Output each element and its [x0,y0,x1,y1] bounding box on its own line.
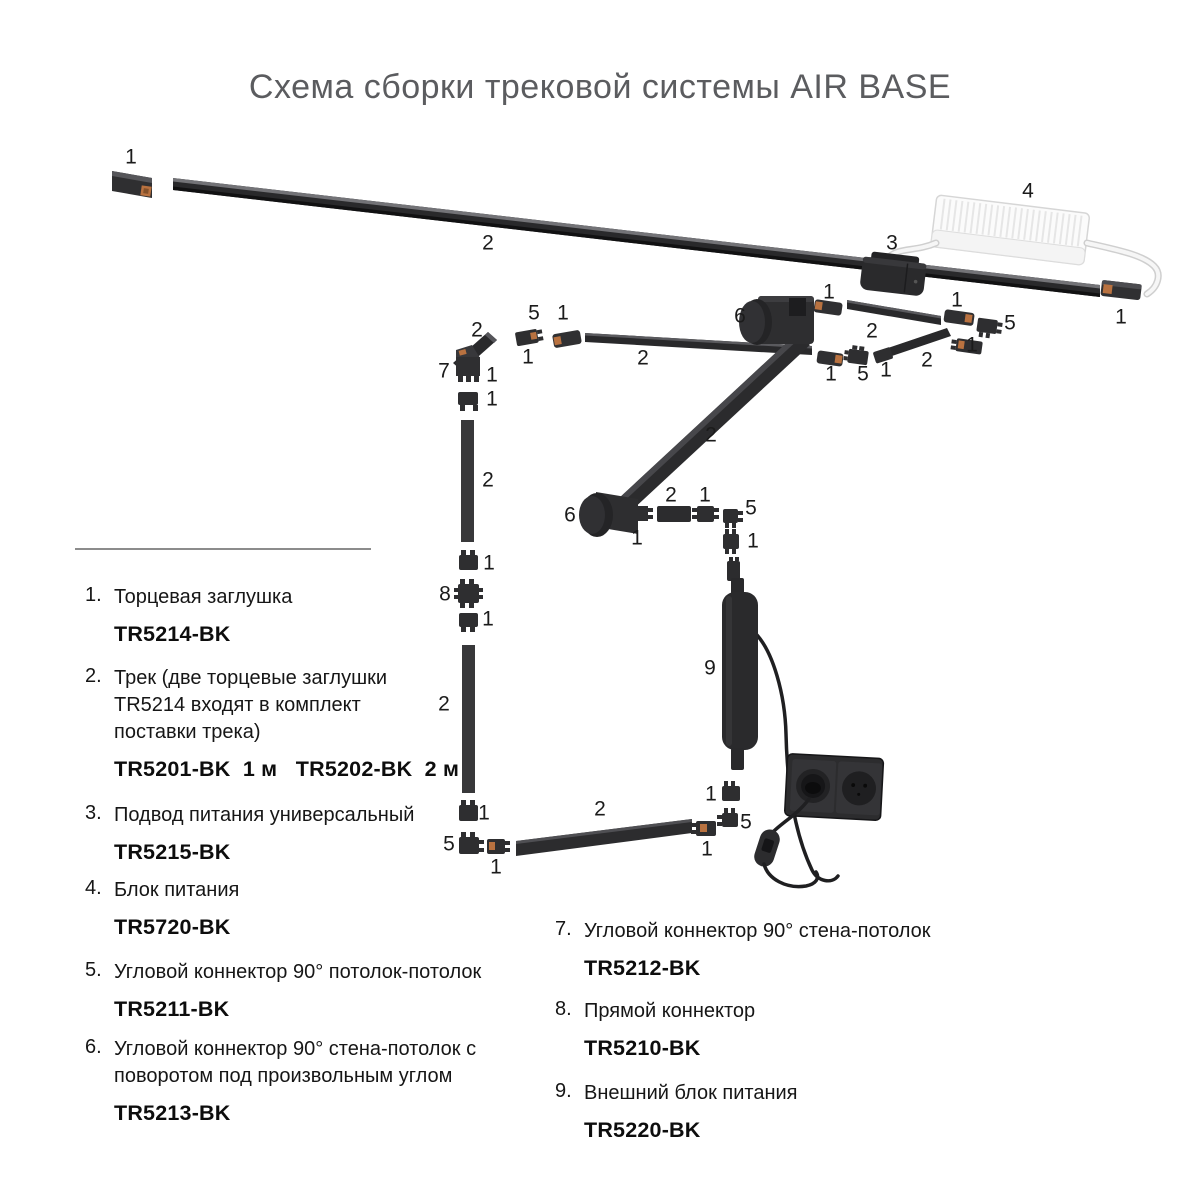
legend-item-code: TR5211-BK [114,997,485,1022]
legend-item-2: 2. Трек (две торцевые заглушки TR5214 вх… [85,665,485,782]
bottom-track [516,819,692,856]
legend-item-number: 9. [555,1080,572,1103]
wall-row-cluster [657,506,743,581]
legend-item-code: TR5220-BK [584,1118,1015,1143]
legend-item-name: Трек (две торцевые заглушки TR5214 входя… [114,665,416,746]
legend-item-name: Внешний блок питания [584,1080,1015,1107]
legend-item-number: 5. [85,959,102,982]
legend-item-code: TR5212-BK [584,956,1015,981]
legend-item-number: 6. [85,1036,102,1059]
legend-left-column: 1. Торцевая заглушка TR5214-BK 2. Трек (… [85,584,485,1126]
wall-arm-highlight [617,333,801,504]
end-cap-icon [1100,280,1142,300]
legend-item-name: Блок питания [114,877,485,904]
legend-item-5: 5. Угловой коннектор 90° потолок-потолок… [85,959,485,1022]
ceiling-rect-cluster [813,299,1003,367]
legend-item-code: TR5720-BK [114,915,485,940]
rotating-corner-connector-top [739,296,814,345]
inline-switch [752,827,783,869]
legend-item-number: 1. [85,584,102,607]
legend-item-7: 7. Угловой коннектор 90° стена-потолок T… [555,918,1015,981]
ceiling-corner-cluster [453,328,582,411]
legend-item-4: 4. Блок питания TR5720-BK [85,877,485,940]
legend-item-name: Прямой коннектор [584,998,1015,1025]
legend-item-number: 2. [85,665,102,688]
legend-item-name: Угловой коннектор 90° стена-потолок [584,918,1015,945]
legend-item-code: TR5213-BK [114,1101,485,1126]
end-cap-icon [112,171,152,198]
legend-item-code: TR5214-BK [114,622,485,647]
legend-item-number: 7. [555,918,572,941]
legend-item-number: 4. [85,877,102,900]
connector-stack [717,781,740,827]
legend-item-name: Торцевая заглушка [114,584,485,611]
legend-item-number: 8. [555,998,572,1021]
legend-item-9: 9. Внешний блок питания TR5220-BK [555,1080,1015,1143]
legend-item-3: 3. Подвод питания универсальный TR5215-B… [85,802,485,865]
legend-item-code: TR5210-BK [584,1036,1015,1061]
legend-item-1: 1. Торцевая заглушка TR5214-BK [85,584,485,647]
bottom-track-end-connector [691,821,716,836]
power-feed [859,250,927,296]
power-supply-unit [931,195,1090,265]
legend-item-number: 3. [85,802,102,825]
legend-right-column: 7. Угловой коннектор 90° стена-потолок T… [555,918,1015,1143]
legend-item-name: Подвод питания универсальный [114,802,485,829]
legend-item-8: 8. Прямой коннектор TR5210-BK [555,998,1015,1061]
legend-divider [75,548,371,550]
legend-item-code: TR5215-BK [114,840,485,865]
external-psu [722,578,758,770]
legend-item-name: Угловой коннектор 90° потолок-потолок [114,959,485,986]
legend-item-6: 6. Угловой коннектор 90° стена-потолок с… [85,1036,485,1126]
wall-arm-track [617,333,810,512]
legend-item-name: Угловой коннектор 90° стена-потолок с по… [114,1036,506,1090]
legend-item-code: TR5201-BK 1 м TR5202-BK 2 м [114,757,485,782]
